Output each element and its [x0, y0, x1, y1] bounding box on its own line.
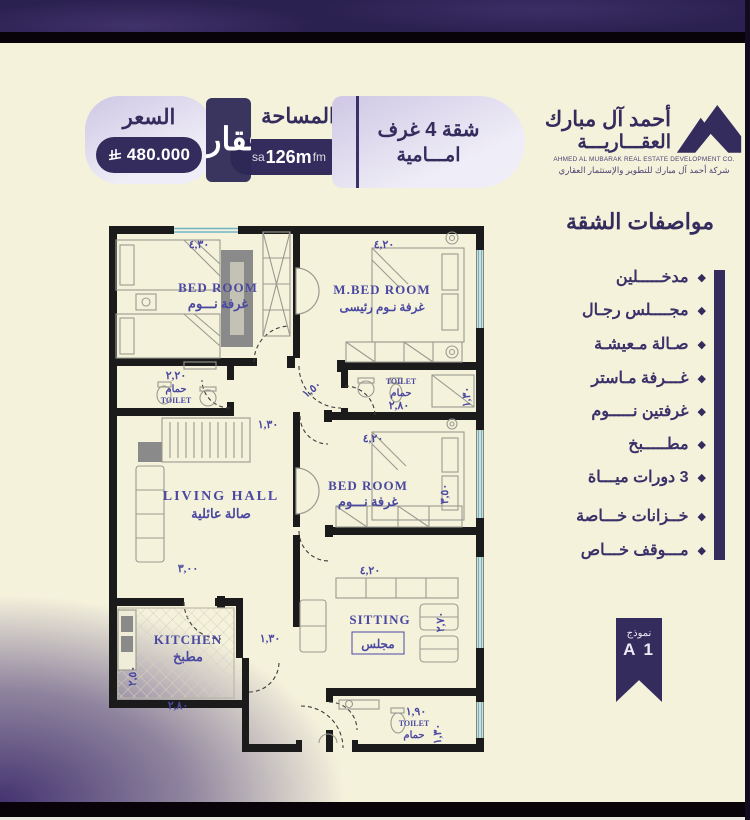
room-label-en: LIVING HALL: [163, 489, 280, 504]
spec-item-private-parking: ◆ مـــوقف خـــاص: [520, 537, 706, 563]
room-label-ar: غرفة نـــوم: [338, 494, 398, 510]
dim: ٢,٨٠: [389, 400, 409, 412]
dim: ٢,٢٠: [166, 370, 186, 382]
unit-type-line2: امـــامية: [396, 144, 460, 167]
diamond-bullet-icon: ◆: [698, 438, 706, 451]
dim: ٢,٥٠: [127, 666, 139, 686]
dim: ٤,٢٠: [360, 565, 380, 577]
diamond-bullet-icon: ◆: [698, 372, 706, 385]
price-label: السعر: [85, 105, 213, 130]
room-label-en: TOILET: [386, 377, 417, 386]
area-value: 126m: [266, 147, 312, 168]
room-label-en: TOILET: [399, 719, 430, 728]
dim: ٣,٠٠: [178, 563, 198, 575]
logo-tagline: شركة أحمد آل مبارك للتطوير والإستثمار ال…: [545, 165, 743, 176]
room-label-en: M.BED ROOM: [333, 282, 430, 297]
diamond-bullet-icon: ◆: [698, 304, 706, 317]
area-watermark-suffix: fm: [313, 150, 326, 164]
dim: ١,٥٠: [300, 379, 324, 401]
logo-english-line: AHMED AL MUBARAK REAL ESTATE DEVELOPMENT…: [545, 156, 743, 163]
room-label-ar: حمام: [403, 730, 424, 741]
spec-item-master-room: ◆ غـــرفة مـاستر: [520, 365, 706, 391]
diamond-bullet-icon: ◆: [698, 510, 706, 523]
logo-name-line1: أحمد آل مبارك: [545, 108, 671, 132]
dim: ١,٣٠: [260, 633, 280, 645]
dim: ٤,٢٠: [374, 239, 394, 251]
price-value: 480.000: [127, 145, 191, 165]
top-black-strip: [0, 32, 750, 43]
room-label-en: BED ROOM: [328, 478, 408, 493]
diamond-bullet-icon: ◆: [698, 405, 706, 418]
dim: ١,٣٠: [461, 387, 473, 407]
spec-item-bathrooms: ◆ 3 دورات ميـــاة: [520, 464, 706, 490]
unit-type-pill: شقة 4 غرف امـــامية: [332, 96, 525, 188]
company-logo: أحمد آل مبارك العقـــاريـــة AHMED AL MU…: [545, 92, 743, 192]
area-watermark-prefix: sa: [252, 150, 265, 164]
bottom-black-strip: [0, 802, 750, 817]
model-label: نموذج: [627, 628, 652, 639]
header-divider: [356, 96, 359, 188]
dim: ١,٣٠: [432, 724, 444, 744]
saudi-riyal-icon: [108, 148, 122, 162]
dim: ٢,٨٠: [168, 700, 188, 712]
room-label-ar: حمام: [390, 388, 411, 399]
logo-house-icon: [675, 96, 743, 158]
diamond-bullet-icon: ◆: [698, 271, 706, 284]
diamond-bullet-icon: ◆: [698, 338, 706, 351]
room-label-en: TOILET: [161, 396, 192, 405]
spec-item-mens-majlis: ◆ مجــــلس رجـال: [520, 297, 706, 323]
spec-item-living-room: ◆ صـالة مـعيشـة: [520, 331, 706, 357]
diamond-bullet-icon: ◆: [698, 544, 706, 557]
price-card: السعر 480.000: [85, 96, 213, 184]
price-pill: 480.000: [96, 137, 202, 173]
spec-item-private-tanks: ◆ خــزانات خـــاصة: [520, 503, 706, 529]
dim: ٢,٧٠: [435, 612, 447, 632]
room-label-en: SITTING: [349, 612, 410, 627]
room-label-ar: صالة عائلية: [191, 506, 251, 521]
floor-plan: ٤,٣٠ ٤,٢٠ BED ROOM غرفة نـــوم M.BED ROO…: [96, 212, 498, 764]
logo-name-line2: العقـــاريـــة: [545, 132, 671, 154]
dim: ٣,٥٠: [439, 484, 451, 504]
spec-item-kitchen: ◆ مطـــــبخ: [520, 431, 706, 457]
room-label-ar: حمام: [165, 384, 186, 395]
poster: السعر 480.000 عقار المساحة sa 126m fm شق…: [0, 0, 750, 820]
model-value: A 1: [623, 640, 655, 660]
dim: ٤,٢٠: [363, 433, 383, 445]
spec-item-entrances: ◆ مدخـــــلين: [520, 264, 706, 290]
room-label-en: KITCHEN: [154, 632, 222, 647]
room-label-en: BED ROOM: [178, 280, 258, 295]
room-label-ar: مجلس: [361, 637, 394, 652]
diamond-bullet-icon: ◆: [698, 471, 706, 484]
room-label-ar: غرفة نـــوم: [188, 296, 248, 312]
specs-title: مواصفات الشقة: [540, 209, 740, 235]
top-purple-band: [0, 0, 750, 32]
dim: ٤,٣٠: [189, 239, 209, 251]
spec-item-two-bedrooms: ◆ غرفتين نـــــوم: [520, 398, 706, 424]
right-edge-strip: [745, 0, 750, 820]
unit-type-line1: شقة 4 غرف: [377, 117, 479, 142]
watermark-box: عقار: [206, 98, 251, 182]
room-label-ar: مطبخ: [173, 649, 203, 665]
room-label-ar: غرفة نـوم رئيسى: [339, 300, 425, 315]
logo-name: أحمد آل مبارك العقـــاريـــة: [545, 108, 671, 154]
specs-vertical-bar: [714, 270, 725, 560]
dim: ١,٣٠: [258, 419, 278, 431]
dim: ١,٩٠: [406, 706, 426, 718]
